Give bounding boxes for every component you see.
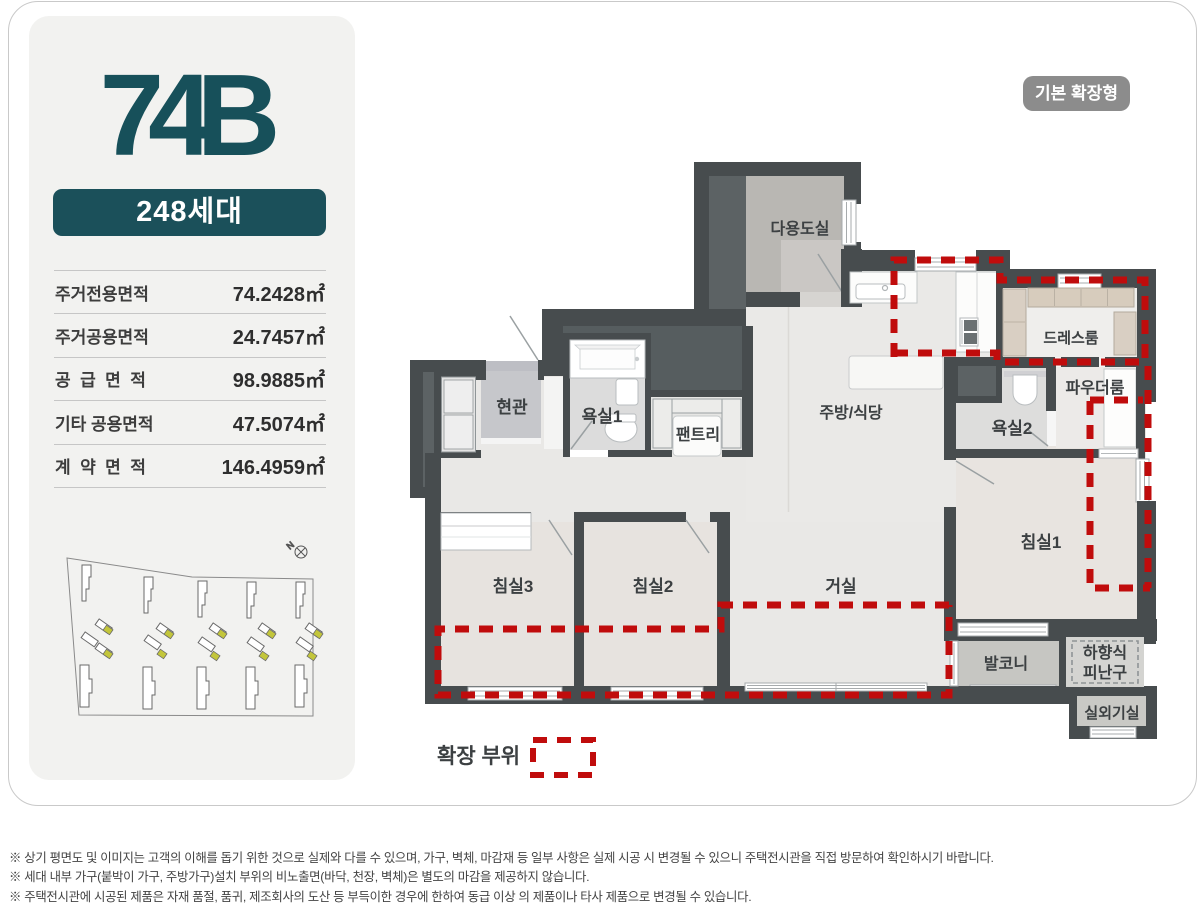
- svg-text:팬트리: 팬트리: [676, 426, 720, 444]
- svg-text:하향식: 하향식: [1083, 643, 1127, 662]
- svg-text:침실1: 침실1: [1021, 532, 1062, 552]
- svg-text:발코니: 발코니: [984, 655, 1028, 673]
- svg-text:침실2: 침실2: [633, 576, 674, 596]
- svg-text:현관: 현관: [496, 398, 528, 417]
- svg-text:주방/식당: 주방/식당: [819, 404, 883, 422]
- svg-text:다용도실: 다용도실: [771, 220, 830, 238]
- svg-text:거실: 거실: [825, 577, 856, 596]
- svg-text:실외기실: 실외기실: [1084, 704, 1139, 722]
- svg-text:피난구: 피난구: [1083, 664, 1127, 682]
- svg-text:드레스룸: 드레스룸: [1043, 330, 1098, 347]
- svg-text:욕실1: 욕실1: [582, 407, 623, 426]
- svg-text:침실3: 침실3: [493, 576, 534, 596]
- svg-text:파우더룸: 파우더룸: [1066, 379, 1125, 397]
- svg-text:욕실2: 욕실2: [992, 419, 1033, 438]
